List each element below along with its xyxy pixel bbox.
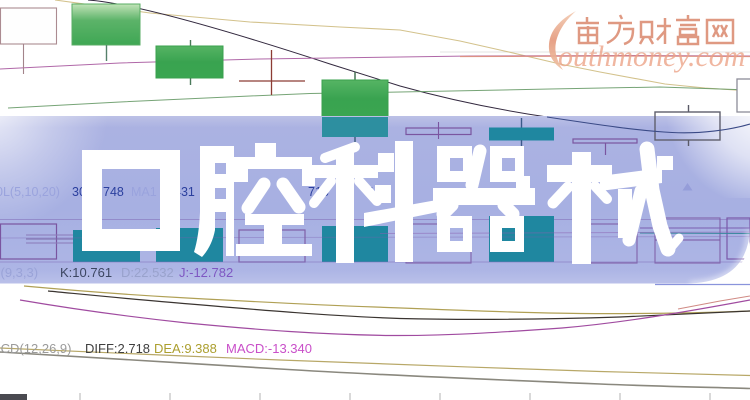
svg-text:DEA:9.388: DEA:9.388: [154, 341, 217, 356]
svg-text:outhmoney.com: outhmoney.com: [558, 40, 745, 73]
svg-text:J(9,3,3): J(9,3,3): [0, 265, 38, 280]
svg-text:DIFF:2.718: DIFF:2.718: [85, 341, 150, 356]
svg-text:748: 748: [103, 185, 124, 199]
svg-text:J:-12.782: J:-12.782: [179, 265, 233, 280]
svg-text:ACD(12,26,9): ACD(12,26,9): [0, 341, 71, 356]
svg-text:K:10.761: K:10.761: [60, 265, 112, 280]
svg-text:MA1: MA1: [131, 185, 157, 199]
svg-text:MACD:-13.340: MACD:-13.340: [226, 341, 312, 356]
svg-text:D:22.532: D:22.532: [121, 265, 174, 280]
svg-text:0L(5,10,20): 0L(5,10,20): [0, 185, 60, 199]
